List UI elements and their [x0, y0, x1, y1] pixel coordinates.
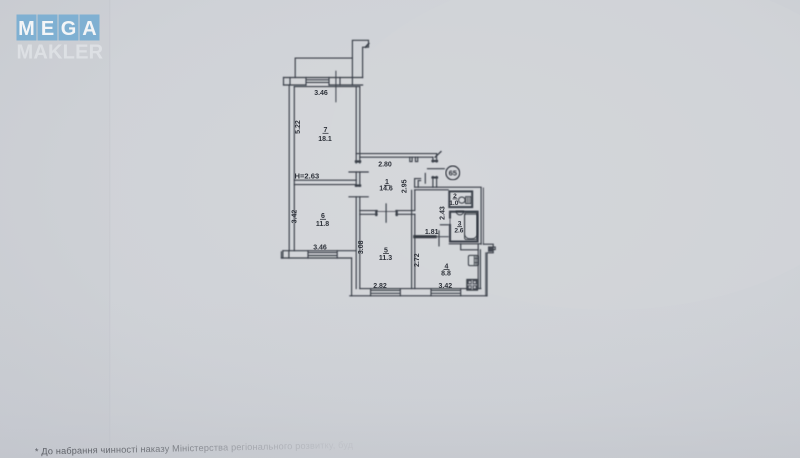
svg-text:A: A	[82, 18, 96, 40]
svg-text:3.42: 3.42	[292, 210, 299, 224]
svg-text:14.6: 14.6	[379, 186, 393, 193]
svg-text:11.3: 11.3	[379, 255, 392, 262]
svg-text:8.8: 8.8	[441, 271, 451, 278]
svg-text:MAKLER: MAKLER	[17, 42, 104, 64]
svg-text:1.81: 1.81	[425, 229, 439, 236]
svg-text:H=2.63: H=2.63	[295, 171, 320, 180]
svg-text:18.1: 18.1	[318, 136, 332, 143]
svg-text:G: G	[61, 18, 77, 40]
svg-text:E: E	[41, 18, 54, 40]
svg-text:2.80: 2.80	[378, 161, 392, 168]
svg-text:2.72: 2.72	[414, 253, 421, 267]
svg-text:11.8: 11.8	[316, 221, 329, 228]
svg-text:2.82: 2.82	[373, 283, 387, 290]
svg-text:3.46: 3.46	[314, 90, 328, 97]
svg-text:5.22: 5.22	[295, 120, 302, 134]
svg-text:1.0: 1.0	[449, 200, 458, 207]
svg-text:2.6: 2.6	[454, 227, 463, 234]
svg-text:M: M	[18, 18, 35, 40]
svg-text:2.43: 2.43	[440, 206, 447, 220]
svg-text:3.42: 3.42	[438, 283, 452, 290]
svg-text:65: 65	[449, 169, 458, 178]
svg-text:3.08: 3.08	[358, 240, 365, 254]
svg-text:3.46: 3.46	[313, 244, 327, 251]
svg-text:2.95: 2.95	[402, 179, 409, 193]
